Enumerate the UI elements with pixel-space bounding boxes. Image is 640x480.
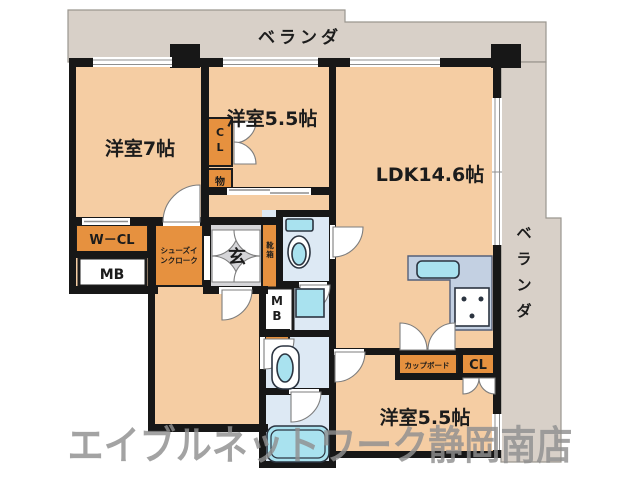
room-label-ldk: LDK14.6帖 — [376, 163, 484, 186]
meter-box-center-char: B — [272, 309, 281, 323]
door-gap — [227, 188, 311, 195]
wall-segment — [69, 251, 155, 258]
stove-burner — [479, 297, 484, 302]
wall-segment — [203, 217, 282, 225]
wall-segment — [148, 217, 156, 294]
shoes-cloak-line: ンクローク — [160, 255, 198, 265]
floorplan-svg: ベランダ ベ ラ ン ダ 洋室7帖 洋室5.5帖 LDK14.6帖 洋室5.5帖… — [0, 0, 640, 480]
shoe-box-char: 靴 — [266, 240, 274, 250]
floor-lower-left — [150, 290, 265, 425]
stove-burner — [470, 314, 475, 319]
entrance-label: 玄 — [228, 246, 246, 268]
wall-segment — [69, 286, 158, 294]
wall-segment — [276, 210, 283, 288]
closet-top-char: L — [216, 141, 223, 154]
window — [350, 57, 440, 67]
closet-top-char: C — [216, 126, 224, 139]
cupboard-label: カップボード — [405, 360, 450, 370]
kitchen-sink — [417, 261, 459, 278]
door-gap — [204, 236, 210, 280]
room-label-western7: 洋室7帖 — [105, 137, 175, 160]
balcony-right-char: ン — [516, 276, 531, 294]
balcony-right-char: ラ — [516, 250, 531, 268]
wall-segment — [259, 330, 336, 337]
balcony-top-label: ベランダ — [258, 27, 342, 48]
watermark-text: エイブルネットワーク静岡南店 — [68, 423, 573, 469]
floorplan-page: ベランダ ベ ラ ン ダ 洋室7帖 洋室5.5帖 LDK14.6帖 洋室5.5帖… — [0, 0, 640, 480]
wall-segment — [148, 286, 155, 432]
stove-icon — [455, 288, 489, 326]
closet-bottom-label: CL — [469, 358, 487, 373]
wall-segment — [395, 348, 400, 378]
shoes-cloak-line: シューズイ — [160, 245, 197, 255]
wall-segment — [458, 348, 463, 378]
wall-segment — [276, 210, 336, 217]
stove-burner — [462, 297, 467, 302]
toilet-tank-icon — [286, 219, 313, 231]
wall-segment — [201, 58, 209, 224]
shoe-box-char: 箱 — [266, 249, 274, 259]
wall-segment — [329, 58, 336, 195]
washer-pan-icon — [296, 289, 324, 317]
balcony-right-char: ベ — [516, 224, 531, 242]
window — [93, 57, 172, 67]
walk-in-closet-label: W－CL — [89, 233, 134, 248]
pillar — [170, 44, 200, 68]
room-label-western55-top: 洋室5.5帖 — [227, 107, 318, 130]
toilet-seat-icon — [292, 243, 306, 265]
window — [223, 57, 318, 67]
washbasin-icon — [277, 354, 293, 382]
meter-box-center-char: M — [271, 294, 283, 308]
balcony-right-char: ダ — [516, 302, 531, 320]
storage-small-label: 物 — [215, 175, 225, 188]
meter-box-left-label: MB — [100, 267, 125, 283]
